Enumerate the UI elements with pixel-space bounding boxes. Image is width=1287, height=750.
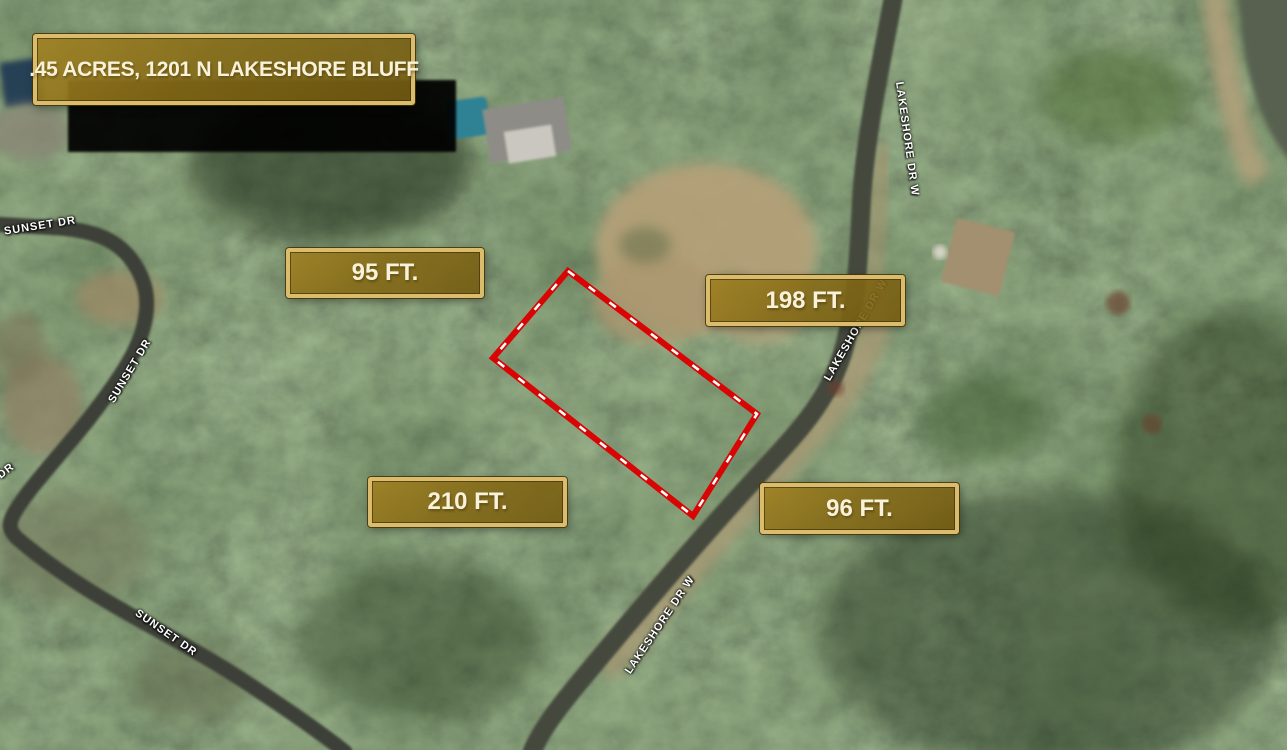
property-title-banner: .45 ACRES, 1201 N LAKESHORE BLUFF xyxy=(33,34,415,105)
dimension-text-96ft: 96 FT. xyxy=(826,495,893,523)
dimension-banner-96ft: 96 FT. xyxy=(760,483,959,534)
dimension-text-198ft: 198 FT. xyxy=(765,287,845,315)
dimension-banner-198ft: 198 FT. xyxy=(706,275,905,326)
house-detail xyxy=(933,245,947,259)
dimension-text-210ft: 210 FT. xyxy=(427,488,507,516)
dimension-banner-95ft: 95 FT. xyxy=(286,248,484,298)
property-title-text: .45 ACRES, 1201 N LAKESHORE BLUFF xyxy=(29,58,419,82)
dimension-text-95ft: 95 FT. xyxy=(352,259,419,287)
property-listing-map: SUNSET DR SUNSET DR DR SUNSET DR LAKESHO… xyxy=(0,0,1287,750)
dimension-banner-210ft: 210 FT. xyxy=(368,477,567,527)
